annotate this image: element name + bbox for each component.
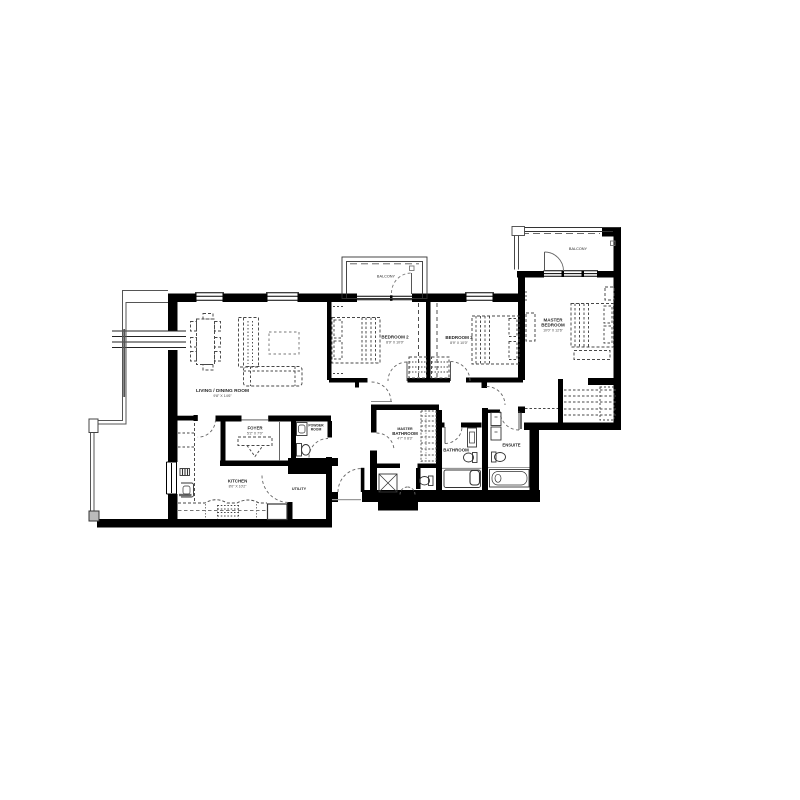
svg-text:10'0" X 12'6": 10'0" X 12'6" bbox=[543, 329, 564, 333]
svg-text:BATHROOM: BATHROOM bbox=[443, 448, 469, 453]
svg-text:BEDROOM 2: BEDROOM 2 bbox=[381, 335, 409, 340]
svg-text:BALCONY: BALCONY bbox=[569, 247, 588, 251]
svg-text:ROOM: ROOM bbox=[311, 428, 322, 432]
svg-text:MASTER: MASTER bbox=[544, 318, 564, 323]
svg-text:BATHROOM: BATHROOM bbox=[392, 431, 418, 436]
svg-text:LIVING / DINING ROOM: LIVING / DINING ROOM bbox=[196, 388, 249, 394]
svg-text:5'2" X 7'0": 5'2" X 7'0" bbox=[247, 432, 264, 436]
svg-text:BEDROOM: BEDROOM bbox=[541, 323, 565, 328]
svg-text:8'9" X 10'0": 8'9" X 10'0" bbox=[386, 341, 405, 345]
svg-text:ENSUITE: ENSUITE bbox=[502, 443, 520, 448]
svg-text:BEDROOM 3: BEDROOM 3 bbox=[445, 335, 473, 340]
svg-text:MASTER: MASTER bbox=[397, 427, 413, 431]
svg-text:KITCHEN: KITCHEN bbox=[228, 479, 248, 484]
svg-text:UTILITY: UTILITY bbox=[292, 487, 307, 491]
svg-text:4'7" X 8'3": 4'7" X 8'3" bbox=[397, 437, 413, 441]
svg-text:POWDER: POWDER bbox=[308, 424, 324, 428]
svg-text:FOYER: FOYER bbox=[247, 426, 263, 431]
svg-text:8'9" X 10'0": 8'9" X 10'0" bbox=[450, 341, 469, 345]
svg-text:9'8" X 14'6": 9'8" X 14'6" bbox=[213, 394, 232, 398]
svg-text:BALCONY: BALCONY bbox=[377, 275, 396, 279]
svg-text:8'0" X 10'2": 8'0" X 10'2" bbox=[229, 485, 248, 489]
